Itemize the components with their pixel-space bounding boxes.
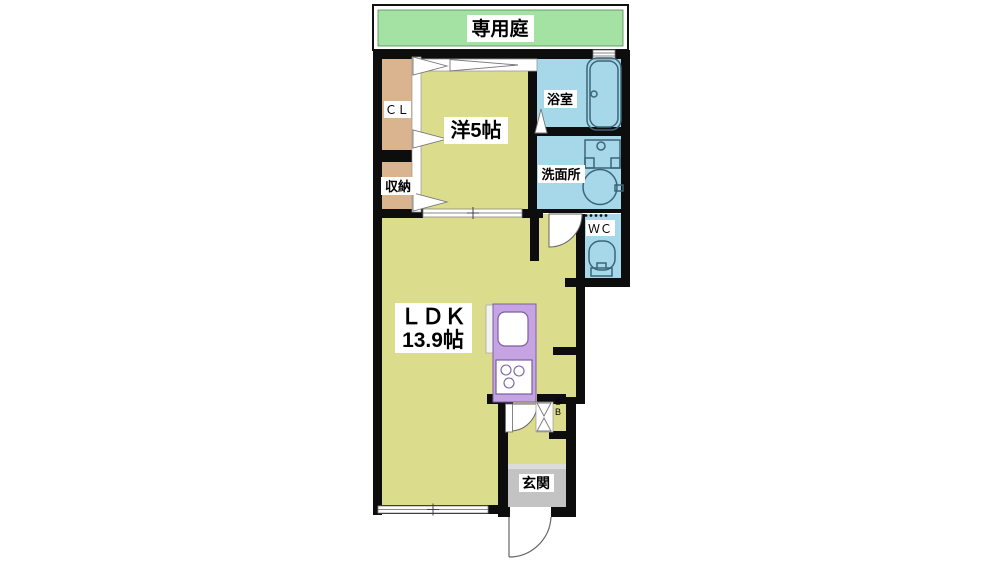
floor-plan-drawing: 専用庭 洋5帖 ＣＬ 収納 浴室 洗面所 ＷＣ ＬＤＫ 13.9帖 玄関 SB [0, 0, 1000, 562]
stove-icon [496, 360, 532, 394]
entrance-step [508, 464, 566, 469]
shoebox-label: SB [553, 397, 563, 417]
bedroom-ldk-sliding-door-icon [423, 207, 522, 219]
hall-door-leaf [506, 404, 513, 432]
ldk-floor-lower [378, 404, 503, 505]
entrance-label: 玄関 [522, 475, 550, 491]
kitchen-counter-icon [486, 304, 536, 402]
wc-label: ＷＣ [588, 222, 612, 236]
closet-label: ＣＬ [385, 103, 409, 117]
floor-plan-page: 専用庭 洋5帖 ＣＬ 収納 浴室 洗面所 ＷＣ ＬＤＫ 13.9帖 玄関 SB [0, 0, 1000, 562]
ldk-label: ＬＤＫ [400, 304, 466, 329]
garden-label: 専用庭 [471, 17, 528, 40]
washroom-label: 洗面所 [541, 167, 580, 182]
storage-label: 収納 [385, 179, 411, 194]
entrance-door-arc [509, 517, 551, 557]
kitchen-sink-icon [498, 312, 528, 346]
ldk-size-label: 13.9帖 [402, 329, 464, 352]
bath-label: 浴室 [547, 92, 573, 107]
bedroom-label: 洋5帖 [450, 118, 501, 142]
